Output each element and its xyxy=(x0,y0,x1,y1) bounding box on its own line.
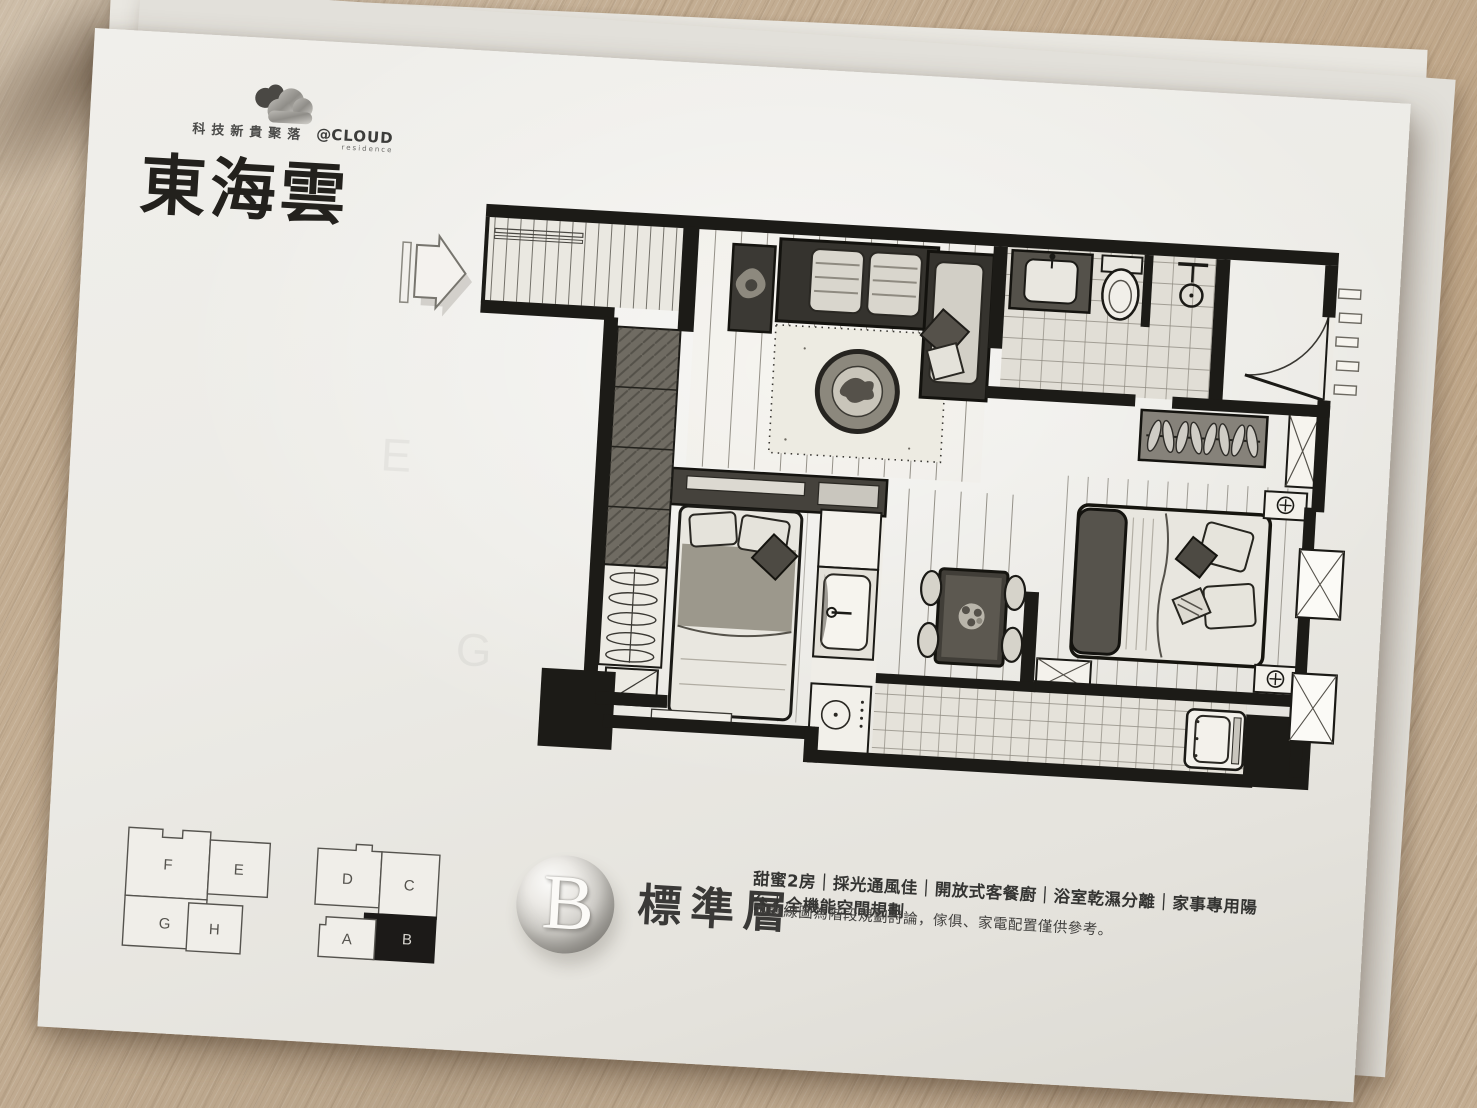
coffee-table xyxy=(815,349,899,433)
master-wardrobe xyxy=(1139,410,1268,467)
unit-badge-letter: B xyxy=(540,856,597,949)
nightstand xyxy=(1264,491,1307,520)
key-plan-right xyxy=(312,842,440,963)
kitchen-sink xyxy=(813,567,878,660)
master-bed xyxy=(1070,504,1270,667)
key-plan-left xyxy=(122,827,271,955)
unit-label: C xyxy=(403,877,415,895)
unit-label: F xyxy=(163,856,173,873)
direction-arrow-icon xyxy=(393,226,478,324)
brochure-page: 科技新貴聚落 @ CLOUD residence 東海雲 E G xyxy=(37,28,1410,1102)
washing-machine xyxy=(1184,709,1245,770)
balcony xyxy=(485,217,683,311)
nightstand xyxy=(1254,665,1297,694)
unit-label: G xyxy=(158,915,171,933)
louver-vents xyxy=(1333,289,1363,395)
plant-console xyxy=(729,244,776,332)
page-title: 東海雲 xyxy=(138,131,353,239)
unit-label: A xyxy=(341,931,352,949)
floor-plan xyxy=(451,202,1367,796)
window-bay xyxy=(1289,673,1337,743)
unit-label: H xyxy=(208,921,220,939)
utility-balcony xyxy=(1184,709,1245,770)
dining-table xyxy=(935,569,1008,667)
bed2 xyxy=(669,505,803,720)
unit-label: D xyxy=(342,871,354,889)
unit-label-highlighted: B xyxy=(402,931,413,949)
key-plan: F E G H D C A B xyxy=(112,815,463,971)
showthrough-letter: E xyxy=(379,427,413,483)
window-bay xyxy=(1296,549,1344,619)
kitchen xyxy=(808,510,882,755)
unit-badge: B xyxy=(514,853,617,956)
vanity-sink xyxy=(1009,250,1092,313)
unit-label: E xyxy=(233,861,244,879)
hanger-wardrobe xyxy=(598,564,667,667)
entry-door xyxy=(1244,313,1336,401)
